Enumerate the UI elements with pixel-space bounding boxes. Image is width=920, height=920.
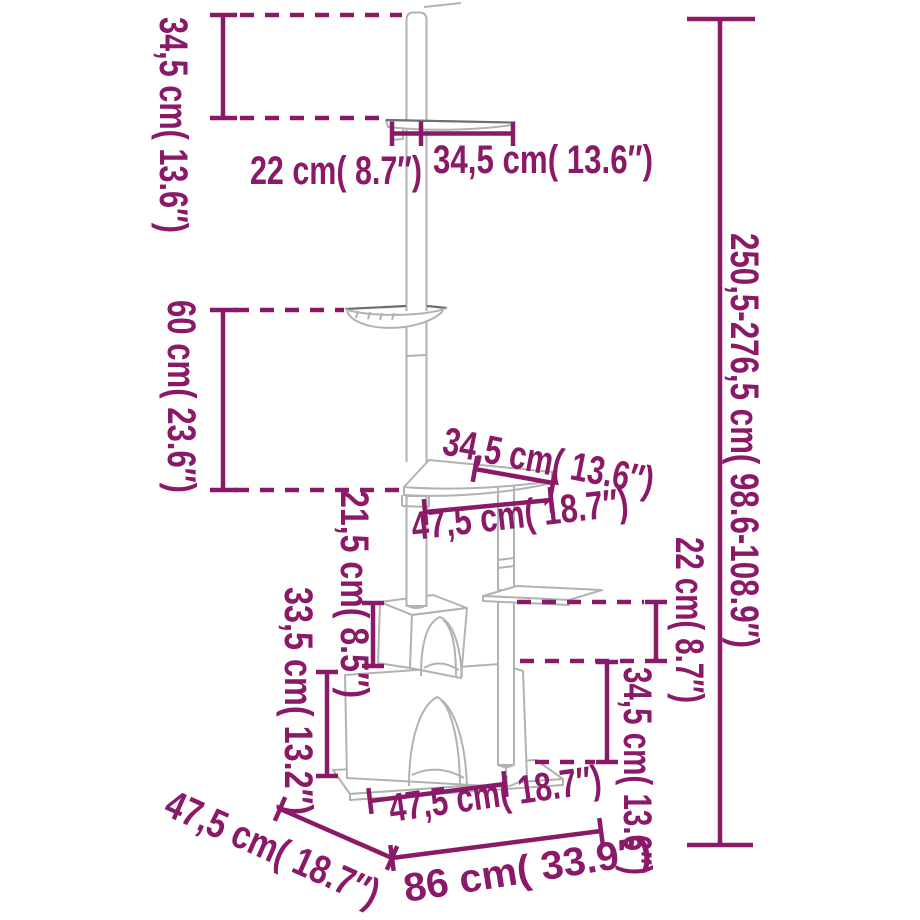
dimension-line xyxy=(210,310,237,490)
dim-base-total-width: 86 cm( 33.9″) xyxy=(390,818,654,911)
dim-big-house-height: 33,5 cm( 13.2″) xyxy=(276,587,338,815)
dim-small-house-height: 21,5 cm( 8.5″) xyxy=(332,490,384,698)
pole-shaft xyxy=(407,13,427,463)
dim-label-right-shelf-gap: 22 cm( 8.7″) xyxy=(667,537,711,703)
dim-label-small-house-height: 21,5 cm( 8.5″) xyxy=(332,490,376,698)
dim-overall-height: 250,5-276,5 cm( 98.6-108.9″) xyxy=(687,19,766,845)
right-post-lower xyxy=(498,600,514,765)
dimension-line xyxy=(596,662,618,762)
cat-tree-dimension-drawing: 34,5 cm( 13.6″) 22 cm( 8.7″) 34,5 cm( 13… xyxy=(0,0,920,920)
hammock-rim xyxy=(345,306,447,309)
dim-label-overall-height: 250,5-276,5 cm( 98.6-108.9″) xyxy=(722,233,766,648)
dim-top-shelf: 22 cm( 8.7″) 34,5 cm( 13.6″) xyxy=(250,122,653,194)
small-house-left xyxy=(378,602,412,668)
dim-mid-shelf-depth: 47,5 cm( 18.7″) xyxy=(409,481,631,549)
top-shelf xyxy=(386,120,513,140)
main-pole-upper xyxy=(407,13,427,463)
dim-ceiling-offset: 34,5 cm( 13.6″) xyxy=(151,15,237,233)
dim-label-ceiling-offset: 34,5 cm( 13.6″) xyxy=(151,17,195,233)
dim-label-top-width: 34,5 cm( 13.6″) xyxy=(433,138,653,182)
dimension-diagram: 34,5 cm( 13.6″) 22 cm( 8.7″) 34,5 cm( 13… xyxy=(0,0,920,920)
hammock xyxy=(345,306,447,328)
dim-hammock-to-shelf: 60 cm( 23.6″) xyxy=(159,300,237,493)
dimension-annotations: 34,5 cm( 13.6″) 22 cm( 8.7″) 34,5 cm( 13… xyxy=(151,15,766,916)
pole-wrap-line xyxy=(407,355,427,356)
dim-label-big-house-height: 33,5 cm( 13.2″) xyxy=(276,587,320,815)
ceiling-plate-edge xyxy=(424,3,461,7)
dimension-line xyxy=(645,602,667,661)
dim-label-mid-shelf-depth: 47,5 cm( 18.7″) xyxy=(409,481,631,549)
dim-label-hammock-to-shelf: 60 cm( 23.6″) xyxy=(159,300,203,493)
dimension-line xyxy=(210,15,237,118)
dim-label-base-depth: 47,5 cm( 18.7″) xyxy=(158,782,386,916)
dim-label-top-depth: 22 cm( 8.7″) xyxy=(250,149,422,193)
